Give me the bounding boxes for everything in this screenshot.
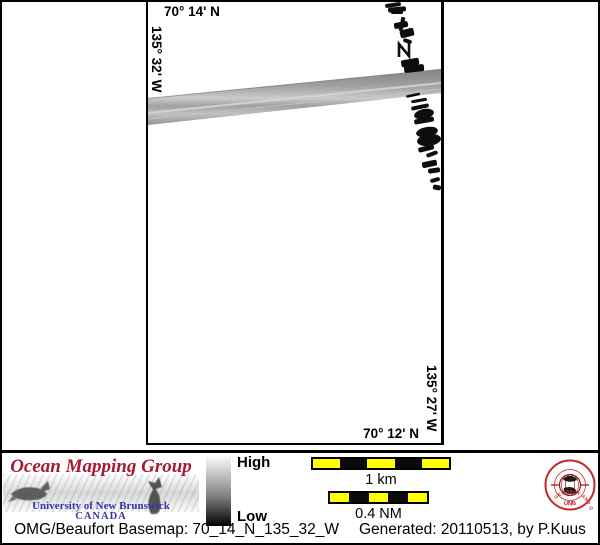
scalebar-segment — [388, 493, 407, 502]
scalebar-04nm — [328, 491, 429, 504]
scalebar-segment — [395, 459, 422, 468]
scalebar-1km-label: 1 km — [311, 472, 451, 488]
unb-geodesy-seal-icon: GEODESY AND GEOMATICS ENGINEERING UNB — [544, 459, 596, 511]
scalebar-segment — [313, 459, 340, 468]
footer-generated-label: Generated: 20110513, by P.Kuus — [359, 521, 586, 538]
backscatter-colorbar — [206, 455, 231, 526]
basemap-page: 70° 14' N 135° 32' W 70° 12' N 135° 27' … — [0, 0, 600, 545]
omg-country: CANADA — [3, 511, 199, 521]
colorbar-high-label: High — [237, 454, 270, 471]
omg-logo: Ocean Mapping Group University of New Br… — [3, 454, 199, 521]
scalebar-segment — [408, 493, 427, 502]
map-label-top-latitude: 70° 14' N — [164, 4, 220, 19]
scalebar-segment — [349, 493, 368, 502]
map-label-right-longitude: 135° 27' W — [424, 365, 439, 431]
scalebar-segment — [367, 459, 394, 468]
footer-caption: OMG/Beaufort Basemap: 70_14_N_135_32_WGe… — [2, 521, 598, 539]
legend-panel: Ocean Mapping Group University of New Br… — [2, 450, 598, 543]
scalebar-segment — [422, 459, 449, 468]
scalebar-segment — [330, 493, 349, 502]
map-label-left-longitude: 135° 32' W — [149, 26, 164, 92]
scalebar-segment — [369, 493, 388, 502]
scalebar-1km — [311, 457, 451, 470]
sonar-map-art — [148, 2, 441, 443]
omg-title: Ocean Mapping Group — [3, 456, 199, 478]
map-label-bottom-latitude: 70° 12' N — [363, 426, 419, 441]
scalebar-04nm-label: 0.4 NM — [328, 506, 429, 522]
seal-unb-text: UNB — [563, 501, 577, 508]
map-viewport: 70° 14' N 135° 32' W 70° 12' N 135° 27' … — [146, 2, 444, 445]
scalebar-segment — [340, 459, 367, 468]
sonar-swath-band — [148, 69, 441, 125]
footer-basemap-label: OMG/Beaufort Basemap: 70_14_N_135_32_W — [14, 521, 339, 538]
svg-text:UNB: UNB — [563, 501, 577, 508]
